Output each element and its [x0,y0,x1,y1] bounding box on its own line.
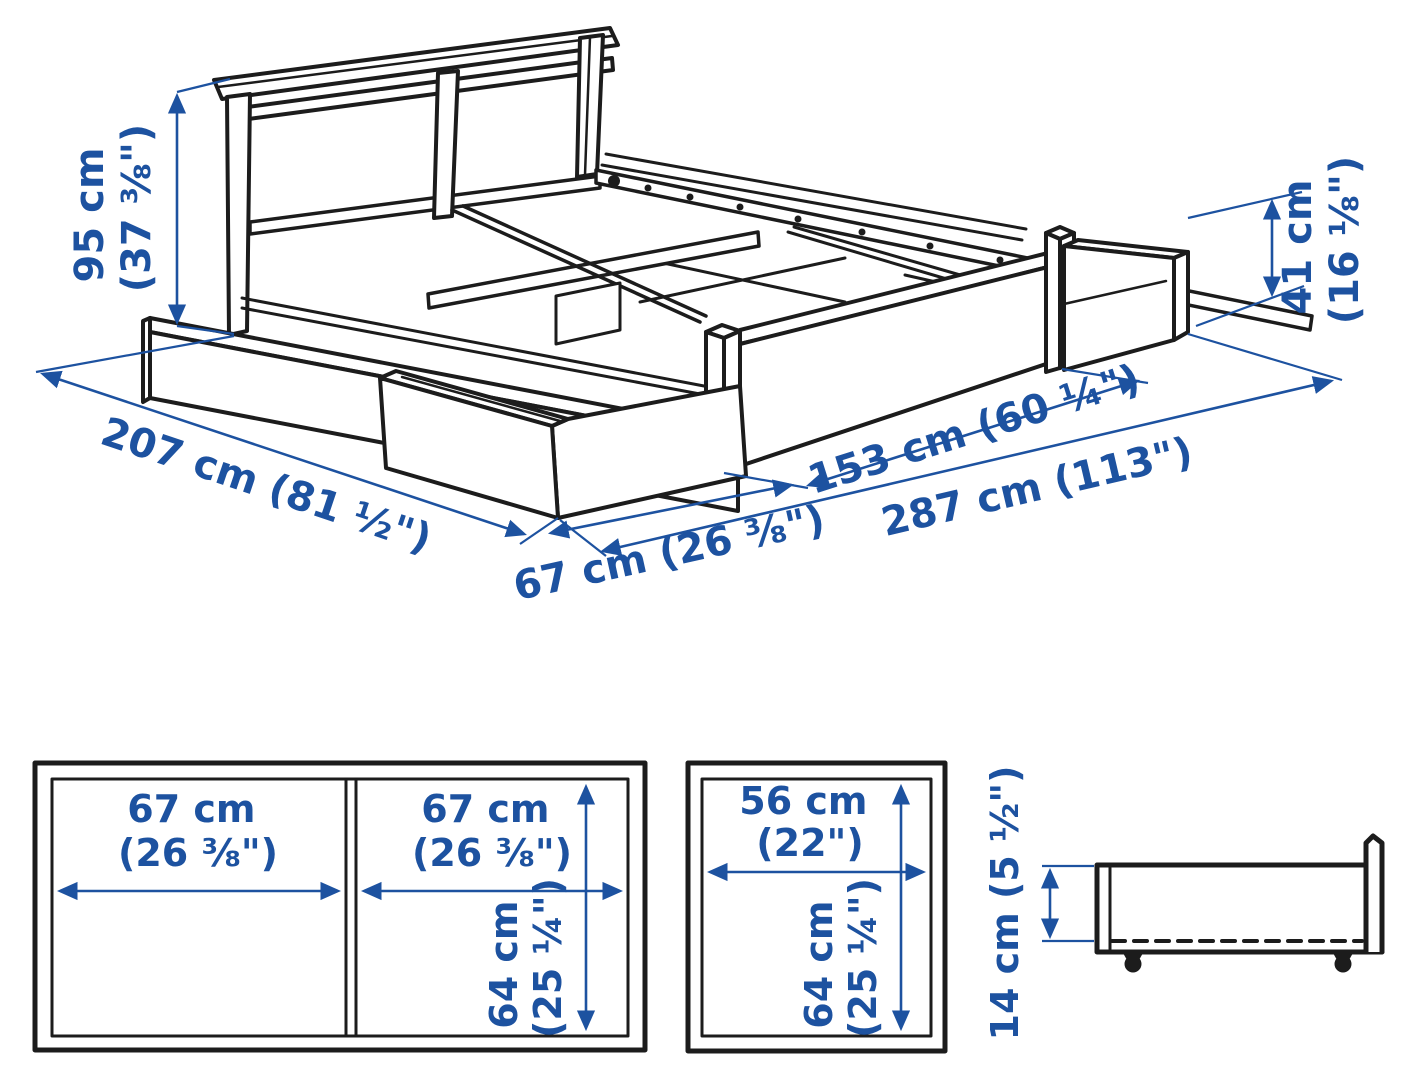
storage-bay-divider-wall [556,283,620,344]
label-side-height: 41 cm (16 ⅛") [1275,156,1368,324]
headboard-bottom-rail [250,176,600,234]
label-single-drawer-width: 56 cm (22") [739,779,880,865]
label-left-drawer-width: 67 cm (26 ⅜") [118,787,278,875]
label-double-drawer-depth: 64 cm (25 ¼") [482,878,570,1038]
label-single-drawer-depth: 64 cm (25 ¼") [797,878,885,1038]
right-storage-drawer [1064,240,1188,370]
side-view-arrows [1042,866,1094,941]
top-view-double-drawer: 67 cm (26 ⅜") 67 cm (26 ⅜") 64 cm (25 ¼"… [35,763,645,1050]
top-view-single-drawer: 56 cm (22") 64 cm (25 ¼") [688,763,945,1051]
side-view-drawer: 14 cm (5 ½") [983,766,1382,1041]
bed-dimension-diagram: 95 cm (37 ⅜") 41 cm (16 ⅛") 207 cm (81 ½… [0,0,1412,1080]
label-headboard-height: 95 cm (37 ⅜") [67,124,160,292]
side-view-outline [1097,836,1382,952]
casters [1123,953,1353,973]
label-side-view-height: 14 cm (5 ½") [983,766,1027,1041]
dimension-diagram-page: 95 cm (37 ⅜") 41 cm (16 ⅛") 207 cm (81 ½… [0,0,1412,1080]
label-right-drawer-width: 67 cm (26 ⅜") [412,787,572,875]
